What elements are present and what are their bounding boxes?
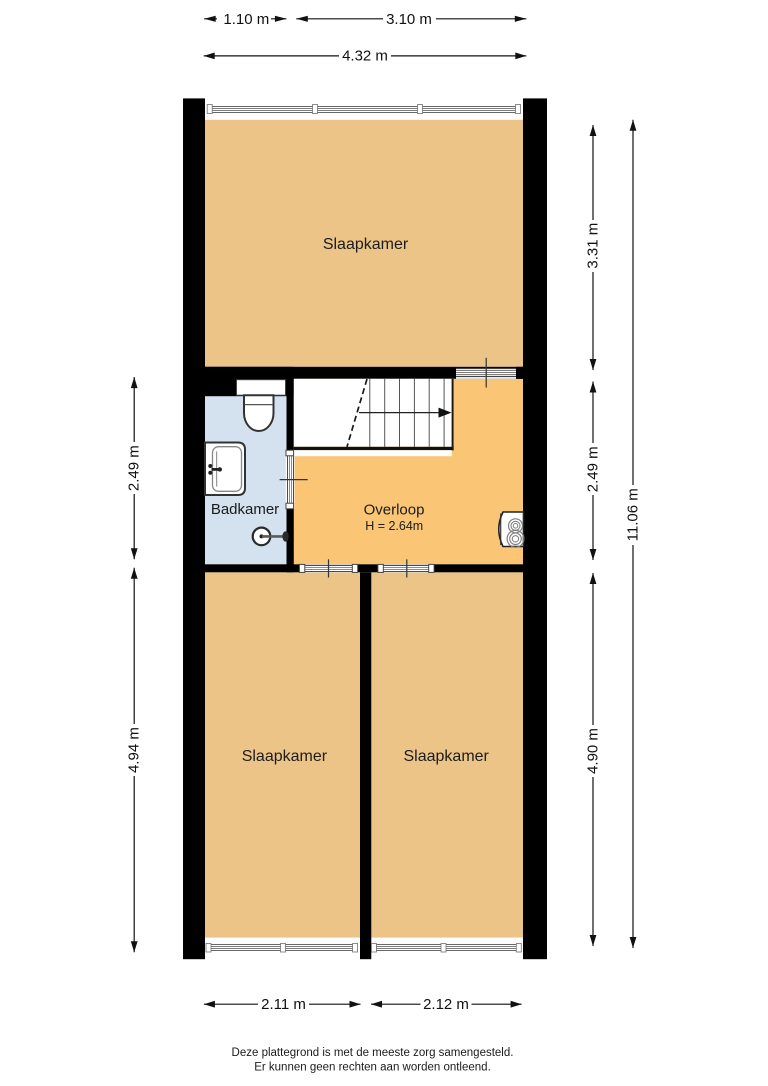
svg-text:11.06 m: 11.06 m (625, 488, 642, 541)
svg-text:Slaapkamer: Slaapkamer (323, 236, 409, 253)
svg-text:3.10 m: 3.10 m (386, 11, 432, 28)
svg-text:4.94 m: 4.94 m (126, 727, 143, 773)
svg-text:3.31 m: 3.31 m (585, 223, 602, 269)
svg-text:Slaapkamer: Slaapkamer (404, 748, 490, 765)
svg-text:2.49 m: 2.49 m (585, 446, 602, 492)
svg-text:4.32 m: 4.32 m (342, 47, 388, 64)
svg-text:1.10 m: 1.10 m (223, 11, 269, 28)
svg-text:2.49 m: 2.49 m (126, 445, 143, 491)
svg-text:Badkamer: Badkamer (211, 501, 279, 518)
svg-text:Overloop: Overloop (364, 502, 425, 519)
svg-text:4.90 m: 4.90 m (585, 728, 602, 774)
svg-text:H = 2.64m: H = 2.64m (365, 519, 423, 533)
svg-text:Slaapkamer: Slaapkamer (242, 748, 328, 765)
svg-text:2.11 m: 2.11 m (261, 996, 306, 1013)
svg-text:Deze plattegrond is met de mee: Deze plattegrond is met de meeste zorg s… (232, 1047, 514, 1059)
svg-text:Er kunnen geen rechten aan wor: Er kunnen geen rechten aan worden ontlee… (254, 1061, 491, 1073)
svg-text:2.12 m: 2.12 m (423, 996, 469, 1013)
